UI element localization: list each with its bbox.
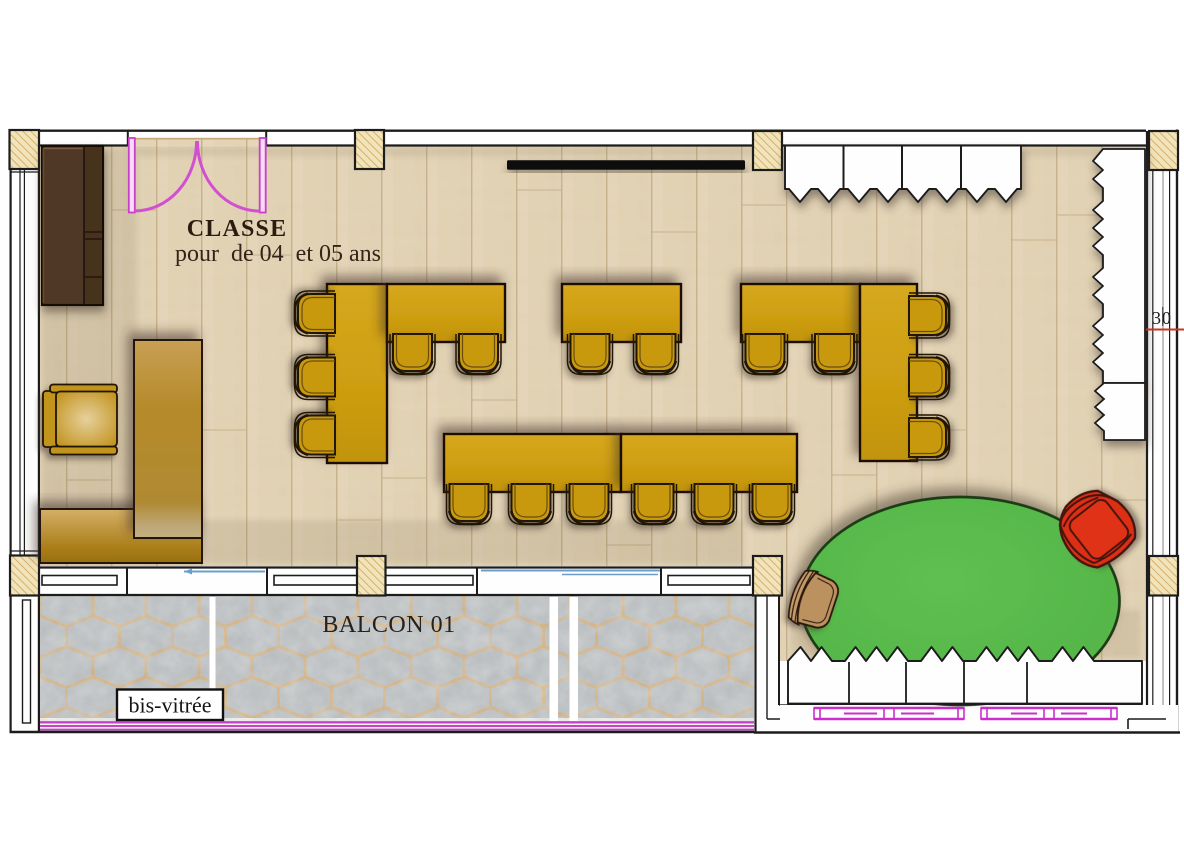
svg-text:30: 30 bbox=[1152, 308, 1172, 328]
svg-text:BALCON 01: BALCON 01 bbox=[322, 612, 455, 638]
svg-text:CLASSE: CLASSE bbox=[187, 216, 288, 242]
svg-text:pour de 04 et 05 ans: pour de 04 et 05 ans bbox=[175, 241, 381, 267]
svg-text:bis-vitrée: bis-vitrée bbox=[128, 693, 211, 718]
